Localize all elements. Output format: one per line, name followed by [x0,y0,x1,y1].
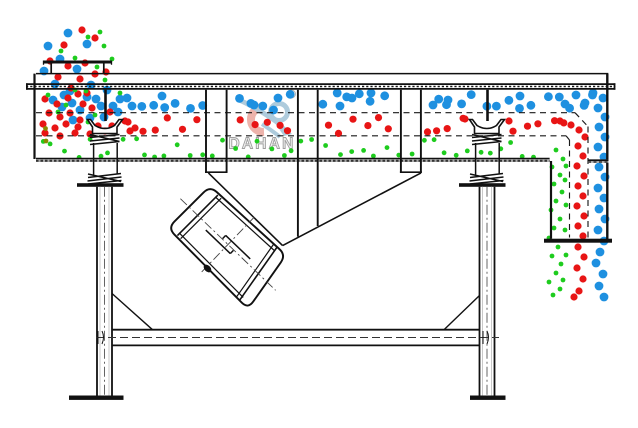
svg-text:DAHAN: DAHAN [229,136,296,153]
